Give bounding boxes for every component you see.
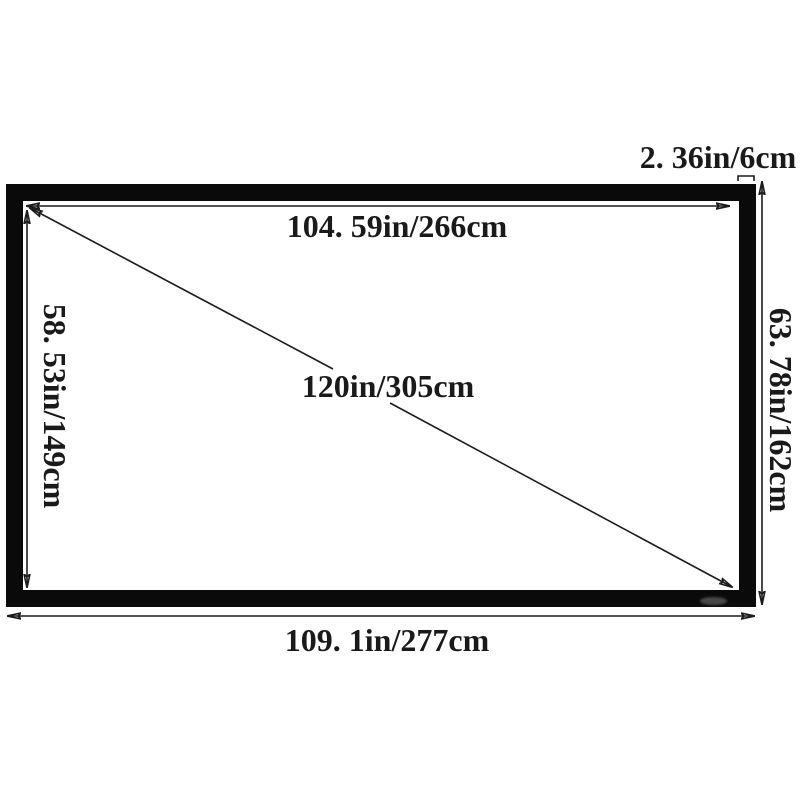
- diagonal-arrow-lower: [390, 403, 732, 587]
- frame-thickness-bracket: [738, 176, 754, 181]
- diagonal-size-label: 120in/305cm: [302, 370, 474, 402]
- overall-height-label: 63. 78in/162cm: [765, 308, 797, 512]
- frame-thickness-label: 2. 36in/6cm: [640, 141, 796, 173]
- screen-dimension-diagram: 104. 59in/266cm 120in/305cm 109. 1in/277…: [0, 0, 800, 800]
- viewing-width-label: 104. 59in/266cm: [287, 210, 507, 242]
- overall-width-label: 109. 1in/277cm: [285, 624, 489, 656]
- viewing-height-label: 58. 53in/149cm: [39, 304, 71, 508]
